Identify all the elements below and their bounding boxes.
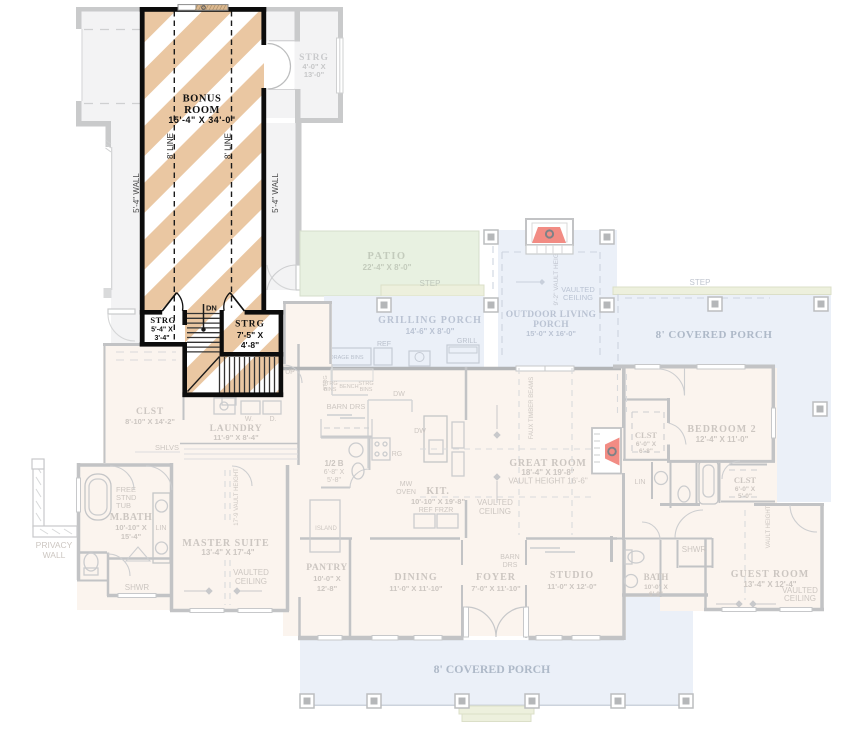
- svg-text:GRILLING PORCH: GRILLING PORCH: [378, 315, 482, 326]
- svg-text:5'-0": 5'-0": [738, 493, 752, 500]
- svg-text:1/2 B: 1/2 B: [324, 459, 343, 468]
- svg-text:BARN: BARN: [500, 554, 519, 561]
- svg-text:OUTDOOR LIVING: OUTDOOR LIVING: [506, 310, 597, 320]
- svg-text:7'-5" X: 7'-5" X: [237, 330, 264, 340]
- svg-text:KIT.: KIT.: [426, 486, 449, 497]
- svg-text:12'-8": 12'-8": [317, 584, 338, 593]
- svg-text:3'-4": 3'-4": [154, 335, 169, 342]
- svg-text:OVEN: OVEN: [396, 489, 416, 496]
- svg-text:SHWR: SHWR: [682, 545, 707, 554]
- svg-text:GUEST ROOM: GUEST ROOM: [731, 569, 809, 580]
- svg-text:D.: D.: [270, 416, 277, 423]
- svg-text:STRG: STRG: [150, 315, 175, 325]
- svg-text:14'-6" X 8'-0": 14'-6" X 8'-0": [406, 327, 455, 336]
- svg-text:WALL: WALL: [43, 550, 66, 560]
- svg-text:CLST: CLST: [635, 430, 658, 440]
- svg-text:STEP: STEP: [420, 279, 441, 288]
- svg-text:CLST: CLST: [136, 407, 164, 417]
- svg-text:STUDIO: STUDIO: [550, 570, 594, 581]
- svg-text:RG: RG: [392, 451, 403, 458]
- svg-text:VAULTED: VAULTED: [477, 498, 513, 507]
- svg-text:DRS: DRS: [503, 562, 518, 569]
- svg-text:11'-9" X 8'-4": 11'-9" X 8'-4": [213, 433, 259, 442]
- svg-text:TUB: TUB: [116, 501, 131, 510]
- svg-text:MW: MW: [400, 481, 413, 488]
- svg-text:BARN DRS: BARN DRS: [327, 402, 366, 411]
- svg-text:BENCH: BENCH: [339, 384, 358, 390]
- svg-text:BONUS: BONUS: [183, 94, 222, 105]
- svg-text:REF FRZR: REF FRZR: [419, 507, 454, 514]
- svg-text:8' COVERED PORCH: 8' COVERED PORCH: [434, 662, 551, 676]
- svg-text:5'-4" WALL: 5'-4" WALL: [271, 173, 280, 213]
- svg-text:15'-4": 15'-4": [121, 532, 142, 541]
- svg-text:5'-4" X: 5'-4" X: [151, 327, 173, 334]
- svg-text:DN: DN: [206, 304, 217, 313]
- svg-text:6'-0" X: 6'-0" X: [735, 486, 756, 493]
- svg-text:6'-8": 6'-8": [639, 448, 653, 455]
- svg-text:STRG: STRG: [235, 320, 265, 330]
- svg-text:5'-8": 5'-8": [327, 477, 341, 484]
- svg-text:22'-4" X 8'-0": 22'-4" X 8'-0": [363, 263, 412, 272]
- svg-text:5'-4" WALL: 5'-4" WALL: [132, 173, 141, 213]
- svg-text:6'-0": 6'-0": [649, 591, 663, 598]
- svg-text:CEILING: CEILING: [563, 293, 593, 302]
- svg-text:UP: UP: [285, 369, 295, 376]
- svg-text:REF: REF: [377, 341, 391, 348]
- svg-text:FOYER: FOYER: [476, 572, 516, 583]
- svg-text:CLST: CLST: [734, 475, 757, 485]
- svg-text:SHWR: SHWR: [125, 583, 150, 592]
- svg-text:11'-0" X 11'-10": 11'-0" X 11'-10": [389, 584, 443, 593]
- svg-text:17'-9 VAULT HEIGHT: 17'-9 VAULT HEIGHT: [234, 468, 240, 526]
- svg-text:11'-0" X 12'-0": 11'-0" X 12'-0": [547, 582, 597, 591]
- svg-text:VAULT HEIGHT: VAULT HEIGHT: [766, 505, 772, 548]
- svg-text:8' LINE: 8' LINE: [166, 133, 175, 159]
- svg-text:7'-0" X 11'-10": 7'-0" X 11'-10": [471, 584, 521, 593]
- svg-text:SHLVS: SHLVS: [155, 443, 179, 452]
- svg-text:GRILL: GRILL: [457, 338, 477, 345]
- svg-text:10'-0" X: 10'-0" X: [644, 584, 668, 591]
- svg-text:LIN: LIN: [156, 525, 167, 532]
- svg-text:VAULT HEIGHT 16'-6": VAULT HEIGHT 16'-6": [508, 477, 588, 486]
- svg-text:8' COVERED PORCH: 8' COVERED PORCH: [656, 329, 773, 341]
- svg-text:6'-8" X: 6'-8" X: [324, 469, 345, 476]
- svg-text:BATH: BATH: [644, 572, 669, 582]
- svg-text:13'-4" X 17'-4": 13'-4" X 17'-4": [201, 548, 254, 557]
- svg-text:PRIVACY: PRIVACY: [36, 540, 73, 550]
- svg-text:6'-0" X: 6'-0" X: [636, 441, 657, 448]
- svg-text:10'-10" X: 10'-10" X: [115, 523, 147, 532]
- svg-text:PANTRY: PANTRY: [306, 563, 348, 573]
- svg-text:ISLAND: ISLAND: [315, 526, 337, 532]
- svg-text:BEDROOM 2: BEDROOM 2: [687, 424, 756, 435]
- svg-text:LIN: LIN: [635, 479, 646, 486]
- svg-text:4'-8": 4'-8": [241, 340, 259, 350]
- svg-text:DW: DW: [414, 428, 426, 435]
- svg-text:STEP: STEP: [690, 278, 711, 287]
- svg-text:M.BATH: M.BATH: [110, 512, 153, 523]
- svg-text:8' LINE: 8' LINE: [224, 133, 233, 159]
- svg-text:PATIO: PATIO: [367, 251, 406, 262]
- svg-text:DW: DW: [393, 391, 405, 398]
- svg-text:CEILING: CEILING: [784, 594, 816, 603]
- svg-text:W.: W.: [245, 416, 253, 423]
- svg-text:8'-10" X 14'-2": 8'-10" X 14'-2": [125, 417, 175, 426]
- svg-text:VAULTED: VAULTED: [233, 568, 269, 577]
- svg-text:13'-0": 13'-0": [304, 70, 325, 79]
- svg-text:10'-10" X 19'-8": 10'-10" X 19'-8": [411, 497, 465, 506]
- svg-text:DINING: DINING: [394, 572, 437, 583]
- svg-text:BINS: BINS: [360, 387, 373, 393]
- svg-text:10'-0" X: 10'-0" X: [313, 574, 340, 583]
- svg-text:15'-4" X 34'-0": 15'-4" X 34'-0": [168, 115, 235, 125]
- svg-text:FAUX TIMBER BEAMS: FAUX TIMBER BEAMS: [529, 377, 535, 440]
- svg-text:CEILING: CEILING: [479, 507, 511, 516]
- svg-text:CEILING: CEILING: [235, 577, 267, 586]
- svg-text:STRG: STRG: [323, 375, 329, 390]
- svg-text:15'-0" X 16'-0": 15'-0" X 16'-0": [526, 329, 576, 338]
- svg-text:12'-4" X 11'-0": 12'-4" X 11'-0": [696, 435, 749, 444]
